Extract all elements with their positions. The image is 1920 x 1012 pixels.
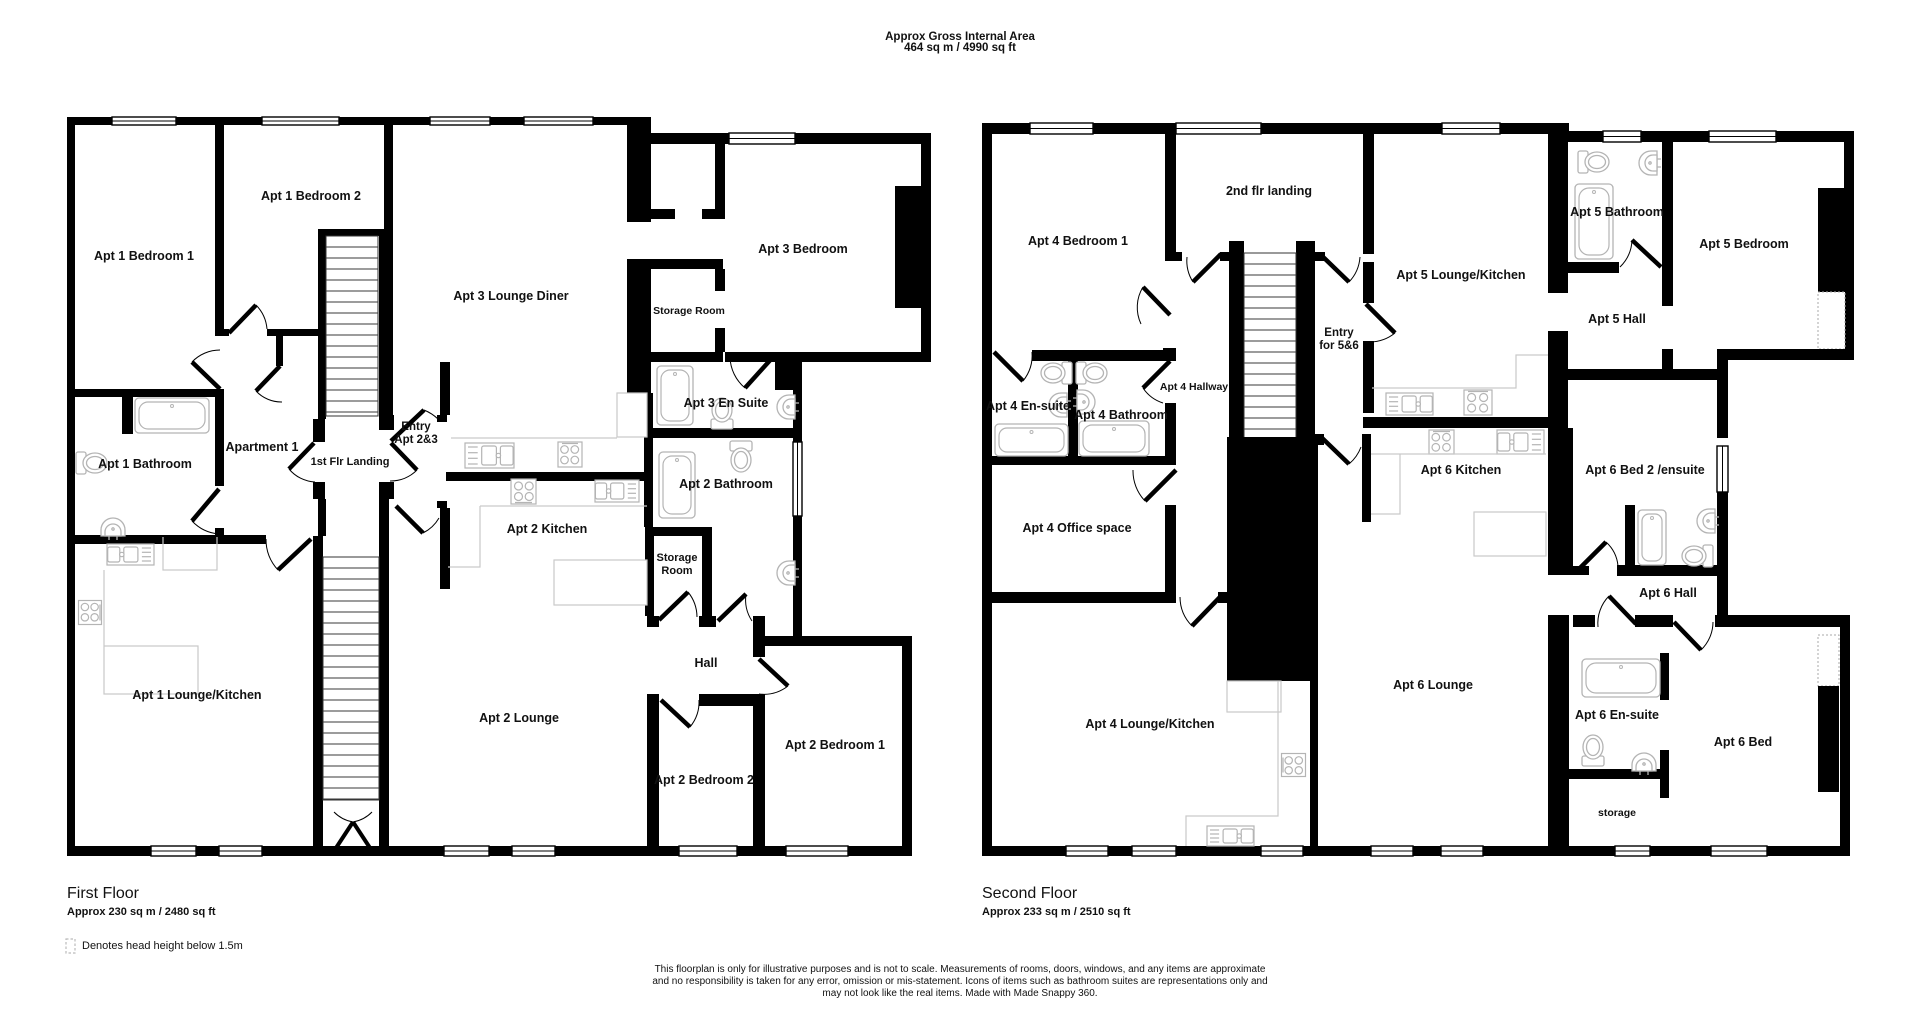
svg-text:Apt 1 Lounge/Kitchen: Apt 1 Lounge/Kitchen (132, 688, 261, 702)
svg-text:Approx 230 sq m / 2480 sq ft: Approx 230 sq m / 2480 sq ft (67, 906, 216, 918)
svg-text:Apt 4 Bedroom 1: Apt 4 Bedroom 1 (1028, 234, 1128, 248)
svg-text:Room: Room (661, 565, 692, 577)
svg-text:Apt 1 Bedroom 1: Apt 1 Bedroom 1 (94, 249, 194, 263)
svg-text:Apt 6 En-suite: Apt 6 En-suite (1575, 708, 1659, 722)
svg-text:may not look like the real ite: may not look like the real items. Made w… (822, 988, 1097, 999)
svg-text:storage: storage (1598, 807, 1636, 819)
svg-text:Apt 4 Hallway: Apt 4 Hallway (1160, 381, 1228, 393)
svg-text:Denotes head height below 1.5m: Denotes head height below 1.5m (82, 940, 243, 952)
svg-text:Apt 6 Bed: Apt 6 Bed (1714, 735, 1772, 749)
svg-text:Apartment 1: Apartment 1 (226, 440, 299, 454)
svg-text:First Floor: First Floor (67, 885, 140, 902)
svg-text:Apt 5 Lounge/Kitchen: Apt 5 Lounge/Kitchen (1396, 268, 1525, 282)
svg-text:Storage Room: Storage Room (653, 305, 725, 317)
svg-text:Apt 1 Bathroom: Apt 1 Bathroom (98, 457, 192, 471)
svg-text:Apt 2 Lounge: Apt 2 Lounge (479, 711, 559, 725)
svg-text:Entry: Entry (401, 421, 431, 433)
svg-text:Apt 2&3: Apt 2&3 (394, 434, 437, 446)
svg-text:Apt 2 Bathroom: Apt 2 Bathroom (679, 477, 773, 491)
svg-text:Apt 3 Bedroom: Apt 3 Bedroom (758, 242, 848, 256)
svg-text:Apt 6 Bed 2 /ensuite: Apt 6 Bed 2 /ensuite (1585, 463, 1705, 477)
svg-text:Apt 6 Kitchen: Apt 6 Kitchen (1421, 463, 1502, 477)
svg-text:Approx 233 sq m / 2510 sq ft: Approx 233 sq m / 2510 sq ft (982, 906, 1131, 918)
svg-text:Apt 6 Hall: Apt 6 Hall (1639, 586, 1697, 600)
svg-text:Apt 4 Bathroom: Apt 4 Bathroom (1074, 408, 1168, 422)
svg-text:Apt 3 Lounge Diner: Apt 3 Lounge Diner (453, 289, 568, 303)
svg-text:Apt 2 Bedroom 1: Apt 2 Bedroom 1 (785, 738, 885, 752)
svg-text:Apt 2 Bedroom 2: Apt 2 Bedroom 2 (654, 773, 754, 787)
svg-text:Apt 5 Bedroom: Apt 5 Bedroom (1699, 237, 1789, 251)
svg-text:Apt 5 Hall: Apt 5 Hall (1588, 312, 1646, 326)
svg-text:Hall: Hall (695, 656, 718, 670)
svg-text:Apt 2 Kitchen: Apt 2 Kitchen (507, 522, 588, 536)
svg-text:Apt 5 Bathroom: Apt 5 Bathroom (1570, 205, 1664, 219)
svg-text:This floorplan is only for ill: This floorplan is only for illustrative … (655, 964, 1266, 975)
svg-text:Second Floor: Second Floor (982, 885, 1078, 902)
svg-text:464 sq m / 4990 sq ft: 464 sq m / 4990 sq ft (904, 42, 1016, 54)
svg-text:Apt 3 En Suite: Apt 3 En Suite (684, 396, 769, 410)
svg-text:Storage: Storage (657, 552, 698, 564)
svg-text:Apt 4 Lounge/Kitchen: Apt 4 Lounge/Kitchen (1085, 717, 1214, 731)
svg-text:Entry: Entry (1324, 327, 1354, 339)
svg-text:Apt 4 En-suite: Apt 4 En-suite (986, 399, 1070, 413)
svg-text:Apt 6 Lounge: Apt 6 Lounge (1393, 678, 1473, 692)
svg-text:2nd flr landing: 2nd flr landing (1226, 184, 1312, 198)
svg-text:and no responsibility is taken: and no responsibility is taken for any e… (652, 976, 1267, 987)
svg-text:1st Flr Landing: 1st Flr Landing (311, 456, 390, 468)
svg-text:Apt 4 Office space: Apt 4 Office space (1022, 521, 1131, 535)
svg-text:for 5&6: for 5&6 (1319, 340, 1359, 352)
svg-text:Apt 1 Bedroom 2: Apt 1 Bedroom 2 (261, 189, 361, 203)
